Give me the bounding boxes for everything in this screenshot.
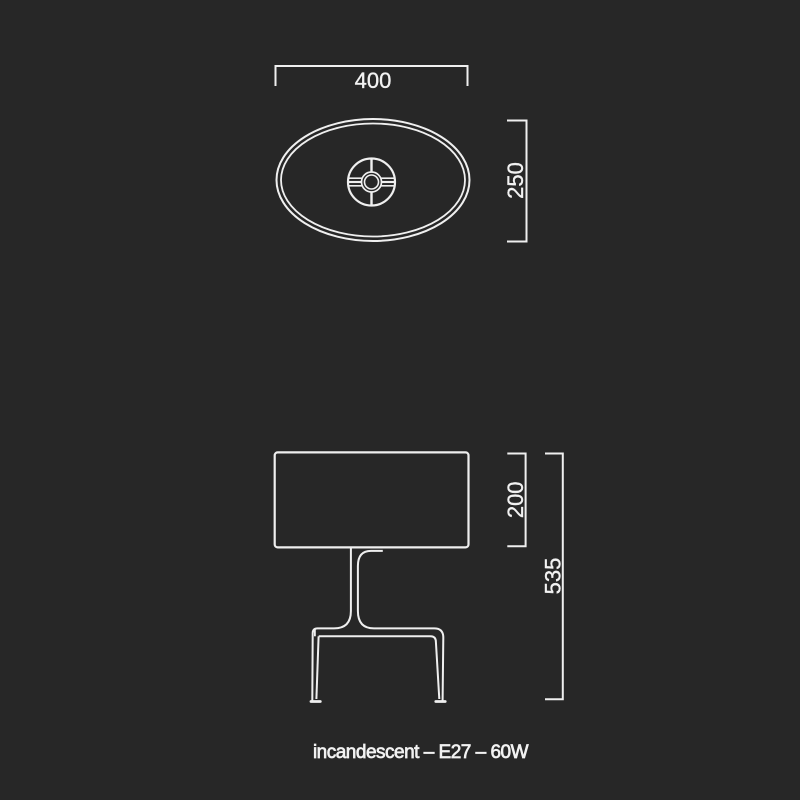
svg-text:535: 535: [541, 558, 566, 595]
svg-text:incandescent – E27 – 60W: incandescent – E27 – 60W: [313, 742, 529, 763]
svg-text:200: 200: [503, 481, 528, 518]
svg-text:400: 400: [355, 68, 392, 93]
svg-text:250: 250: [503, 162, 528, 199]
